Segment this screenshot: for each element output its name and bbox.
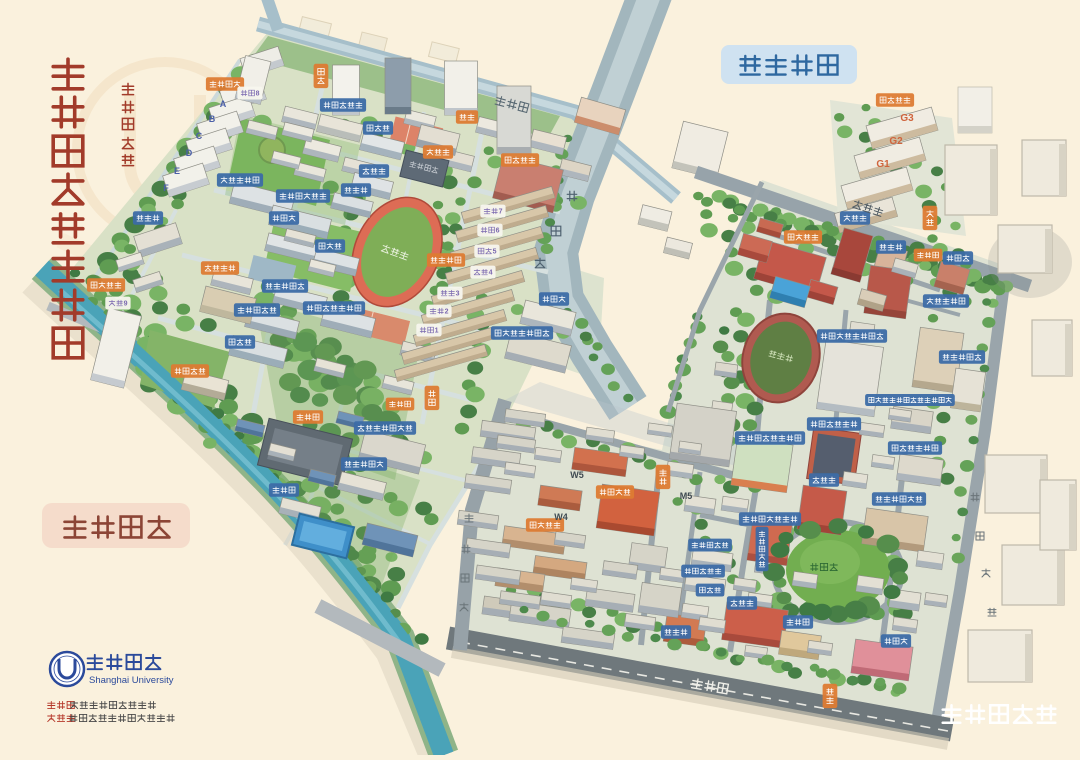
- svg-text:Shanghai University: Shanghai University: [89, 675, 174, 686]
- svg-text:5: 5: [493, 249, 497, 256]
- svg-text:G2: G2: [889, 136, 903, 147]
- svg-text:G1: G1: [876, 159, 890, 170]
- svg-text:D: D: [186, 148, 193, 158]
- svg-text:9: 9: [124, 301, 128, 308]
- svg-text:4: 4: [489, 270, 493, 277]
- svg-text:F: F: [163, 183, 169, 193]
- svg-text:W4: W4: [554, 512, 568, 522]
- svg-text:W5: W5: [570, 470, 584, 480]
- svg-text:2: 2: [445, 309, 449, 316]
- svg-text:A: A: [220, 99, 227, 109]
- svg-text:8: 8: [256, 91, 260, 98]
- svg-text:C: C: [196, 131, 203, 141]
- svg-text:7: 7: [499, 209, 503, 216]
- svg-text:1: 1: [435, 328, 439, 335]
- svg-text:E: E: [174, 166, 180, 176]
- svg-text:G3: G3: [900, 113, 914, 124]
- svg-text:M5: M5: [680, 491, 693, 501]
- svg-text:B: B: [209, 114, 216, 124]
- svg-text:3: 3: [456, 291, 460, 298]
- svg-text:6: 6: [496, 228, 500, 235]
